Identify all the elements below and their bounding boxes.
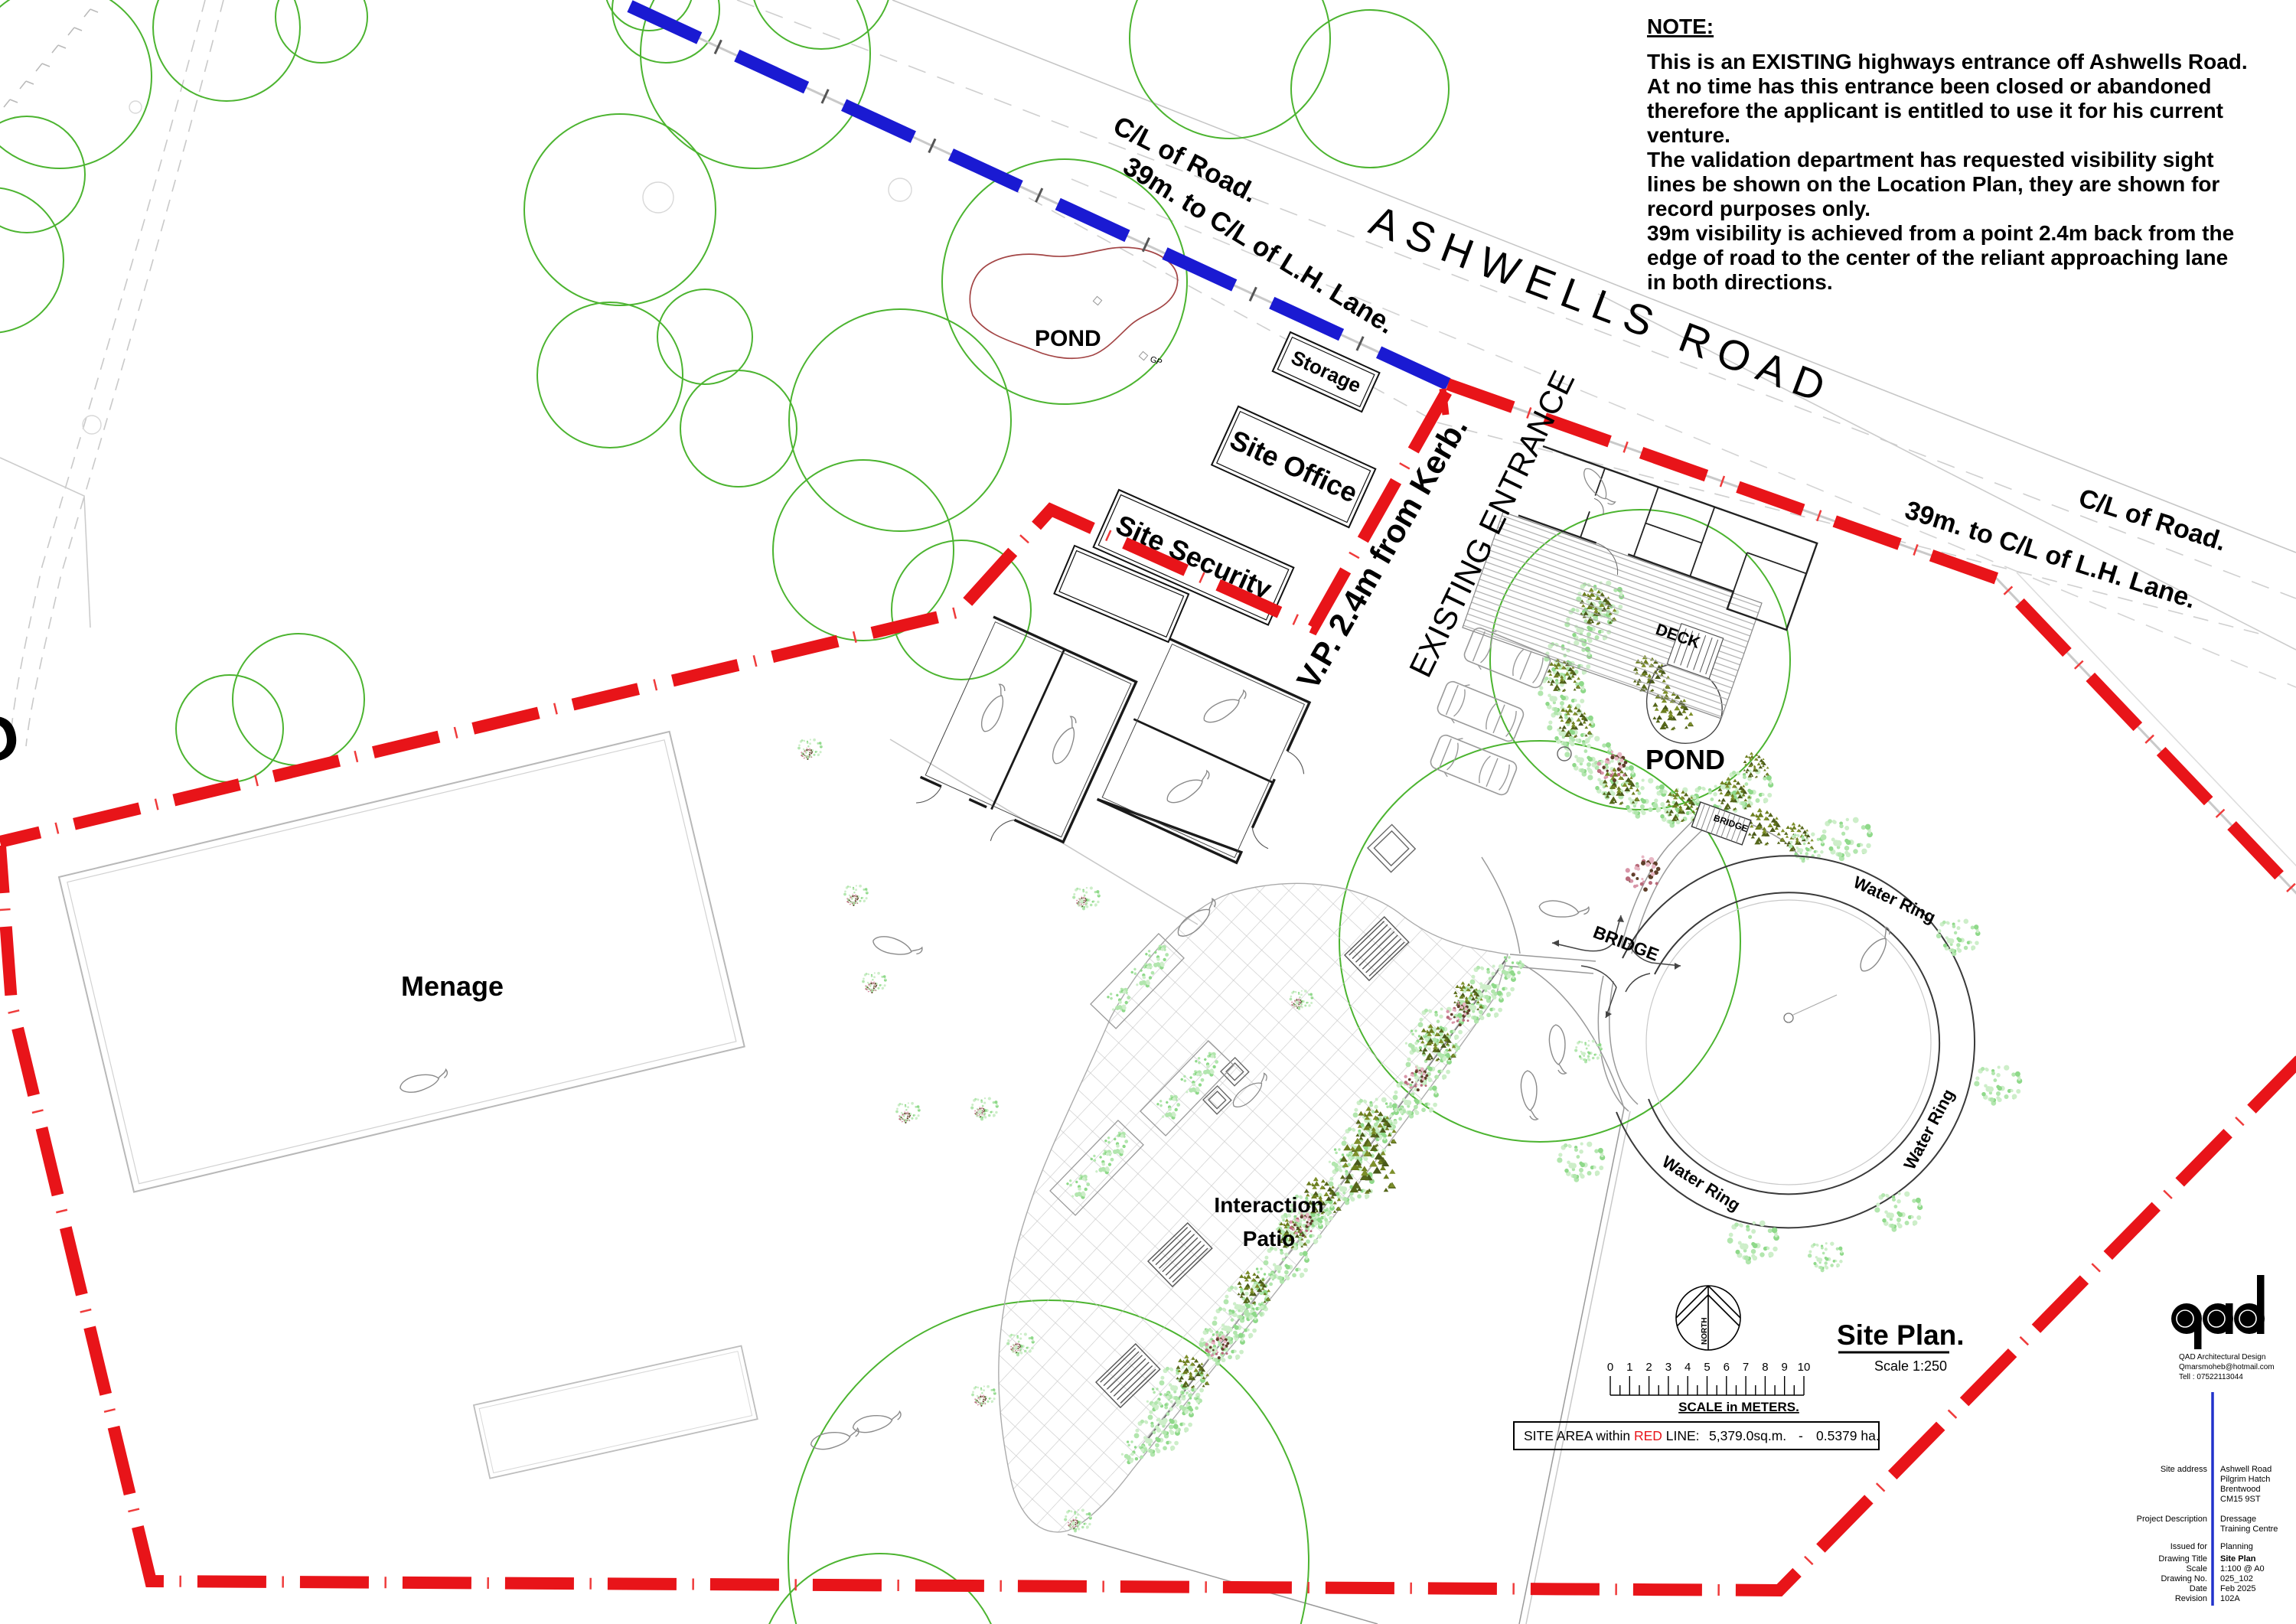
svg-text:SCALE in METERS.: SCALE in METERS.	[1678, 1400, 1799, 1414]
svg-text:therefore the applicant is ent: therefore the applicant is entitled to u…	[1647, 99, 2223, 122]
svg-text:Scale 1:250: Scale 1:250	[1874, 1358, 1947, 1374]
svg-text:025_102: 025_102	[2220, 1574, 2253, 1583]
svg-text:NORTH: NORTH	[1701, 1317, 1709, 1345]
svg-text:5,379.0sq.m.: 5,379.0sq.m.	[1709, 1428, 1786, 1443]
svg-text:Site Plan.: Site Plan.	[1837, 1319, 1965, 1351]
svg-text:Menage: Menage	[401, 970, 504, 1002]
svg-text:lines be shown on the Location: lines be shown on the Location Plan, the…	[1647, 172, 2219, 196]
svg-text:POND: POND	[1035, 326, 1101, 351]
svg-text:Site address: Site address	[2161, 1465, 2208, 1474]
svg-text:8: 8	[1762, 1361, 1768, 1374]
svg-text:Planning: Planning	[2220, 1542, 2253, 1551]
svg-text:1:100 @ A0: 1:100 @ A0	[2220, 1564, 2265, 1573]
svg-text:39m visibility is achieved fro: 39m visibility is achieved from a point …	[1647, 221, 2234, 245]
svg-text:5: 5	[1704, 1361, 1710, 1374]
svg-text:Project Description: Project Description	[2137, 1515, 2207, 1524]
svg-text:Pilgrim Hatch: Pilgrim Hatch	[2220, 1475, 2270, 1484]
svg-text:2: 2	[1645, 1361, 1652, 1374]
svg-text:POND: POND	[1645, 744, 1725, 775]
svg-text:Site Plan: Site Plan	[2220, 1554, 2256, 1564]
svg-text:1: 1	[1626, 1361, 1632, 1374]
svg-text:Date: Date	[2190, 1584, 2207, 1593]
svg-text:Qmarsmoheb@hotmail.com: Qmarsmoheb@hotmail.com	[2179, 1363, 2275, 1371]
svg-text:record purposes only.: record purposes only.	[1647, 197, 1870, 220]
svg-text:in both directions.: in both directions.	[1647, 270, 1833, 294]
svg-text:CM15 9ST: CM15 9ST	[2220, 1495, 2261, 1504]
svg-text:Drawing Title: Drawing Title	[2158, 1554, 2207, 1564]
svg-text:venture.: venture.	[1647, 123, 1730, 147]
svg-text:Feb 2025: Feb 2025	[2220, 1584, 2255, 1593]
svg-text:NOTE:: NOTE:	[1647, 15, 1714, 38]
svg-text:Issued for: Issued for	[2170, 1542, 2208, 1551]
svg-text:Brentwood: Brentwood	[2220, 1485, 2261, 1494]
svg-text:Training Centre: Training Centre	[2220, 1525, 2278, 1534]
svg-text:Drawing No.: Drawing No.	[2161, 1574, 2207, 1583]
svg-text:Ashwell Road: Ashwell Road	[2220, 1465, 2272, 1474]
svg-text:SITE AREA within RED LINE:: SITE AREA within RED LINE:	[1524, 1428, 1700, 1443]
svg-text:0: 0	[1607, 1361, 1613, 1374]
svg-text:Interaction: Interaction	[1214, 1193, 1323, 1217]
svg-text:102A: 102A	[2220, 1594, 2240, 1603]
svg-text:QAD Architectural Design: QAD Architectural Design	[2179, 1353, 2265, 1361]
svg-text:The validation department has: The validation department has requested …	[1647, 148, 2214, 171]
svg-text:10: 10	[1798, 1361, 1811, 1374]
svg-text:0.5379 ha.: 0.5379 ha.	[1816, 1428, 1880, 1443]
svg-text:Revision: Revision	[2175, 1594, 2207, 1603]
svg-text:7: 7	[1743, 1361, 1749, 1374]
svg-text:4: 4	[1684, 1361, 1691, 1374]
svg-text:Dressage: Dressage	[2220, 1515, 2256, 1524]
svg-text:9: 9	[1782, 1361, 1788, 1374]
svg-text:Patio: Patio	[1243, 1227, 1295, 1251]
svg-text:6: 6	[1724, 1361, 1730, 1374]
svg-text:edge of road to the center of: edge of road to the center of the relian…	[1647, 246, 2228, 269]
svg-text:At no time has this entrance b: At no time has this entrance been closed…	[1647, 74, 2211, 98]
svg-text:Scale: Scale	[2186, 1564, 2207, 1573]
svg-text:This is an EXISTING highways e: This is an EXISTING highways entrance of…	[1647, 50, 2248, 73]
svg-text:Tell : 07522113044: Tell : 07522113044	[2179, 1373, 2243, 1381]
svg-text:3: 3	[1665, 1361, 1671, 1374]
svg-text:-: -	[1799, 1428, 1803, 1443]
